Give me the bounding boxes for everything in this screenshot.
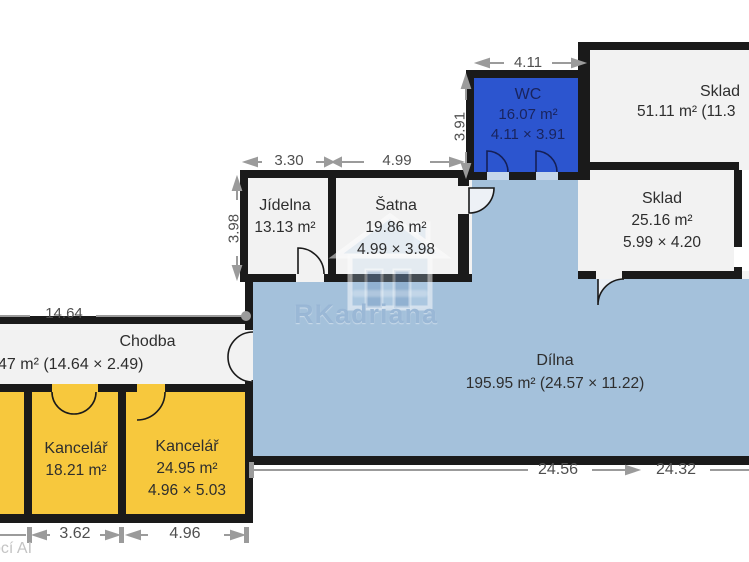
dimension-label-jidelna-width: 3.30 — [259, 152, 319, 169]
wc-door-opening-1 — [487, 172, 509, 180]
wall-sklad-divider — [578, 162, 749, 170]
ai-note-text: ocí AI — [0, 540, 32, 558]
room-label-satna: Šatna 19.86 m² 4.99 × 3.98 — [334, 195, 458, 261]
jidelna-door-opening — [296, 274, 324, 282]
room-label-sklad: Sklad 25.16 m² 5.99 × 4.20 — [584, 188, 740, 254]
wall-office-bottom — [0, 514, 253, 523]
room-name: Sklad — [700, 83, 740, 100]
dimension-label-wc-height: 3.91 — [452, 107, 469, 147]
room-size: 4.96 × 5.03 — [126, 480, 248, 502]
room-size: 4.99 × 3.98 — [334, 239, 458, 261]
room-area: 19.86 m² — [334, 217, 458, 239]
room-area: 195.95 m² (24.57 × 11.22) — [405, 372, 705, 395]
kancelar1-door-opening — [52, 384, 98, 392]
wall-block-top — [240, 170, 472, 178]
dimension-label-dilna-width-a: 24.56 — [528, 461, 588, 479]
floor-plan: RKadriana WC 16.07 m² 4.11 × 3.91 Sklad … — [0, 0, 749, 562]
wall-block-bottom — [240, 274, 472, 282]
dimension-label-kancelar-2-width: 4.96 — [155, 525, 215, 543]
room-area: 13.13 m² — [241, 217, 329, 239]
dimension-label-dilna-width-b: 24.32 — [646, 461, 706, 479]
room-name: Dílna — [405, 349, 705, 372]
room-label-dilna: Dílna 195.95 m² (24.57 × 11.22) — [405, 349, 705, 395]
room-label-kancelar-1: Kancelář 18.21 m² — [28, 438, 124, 482]
room-area: 51.11 m² (11.3 — [637, 103, 736, 120]
room-label-chodba-name: Chodba — [105, 331, 190, 352]
room-label-sklad-top-name: Sklad — [700, 81, 740, 102]
room-size: 4.11 × 3.91 — [468, 125, 588, 145]
brand-watermark: RKadriana — [294, 299, 438, 330]
room-name: Šatna — [334, 195, 458, 217]
chodba-door-opening — [245, 330, 253, 380]
room-label-jidelna: Jídelna 13.13 m² — [241, 195, 329, 239]
room-size: 5.99 × 4.20 — [584, 232, 740, 254]
room-name: Kancelář — [126, 436, 248, 458]
room-label-chodba-area: 47 m² (14.64 × 2.49) — [0, 354, 143, 375]
wall-wc-bottom — [466, 172, 590, 180]
dimension-label-satna-width: 4.99 — [367, 152, 427, 169]
dimension-label-chodba-width: 14.64 — [34, 305, 94, 322]
wc-door-opening-2 — [536, 172, 558, 180]
room-area: 24.95 m² — [126, 458, 248, 480]
dimension-label-kancelar-1-width: 3.62 — [45, 525, 105, 543]
room-name: Jídelna — [241, 195, 329, 217]
sklad-divider-opening — [739, 162, 749, 170]
room-label-kancelar-2: Kancelář 24.95 m² 4.96 × 5.03 — [126, 436, 248, 502]
kancelar2-door-opening — [137, 384, 165, 392]
room-name: Chodba — [119, 333, 175, 350]
watermark-smudge — [352, 290, 428, 297]
room-label-wc: WC 16.07 m² 4.11 × 3.91 — [468, 85, 588, 145]
room-label-sklad-top-area: 51.11 m² (11.3 — [637, 101, 736, 122]
room-name: Sklad — [584, 188, 740, 210]
satna-door-opening — [458, 186, 469, 214]
room-name: Kancelář — [28, 438, 124, 460]
wall-sklad-top — [578, 42, 749, 50]
dimension-label-block-height: 3.98 — [226, 201, 243, 257]
room-area: 47 m² (14.64 × 2.49) — [0, 356, 143, 373]
sklad-door-opening — [596, 271, 622, 279]
room-area: 25.16 m² — [584, 210, 740, 232]
room-name: WC — [468, 85, 588, 105]
exterior-sliver — [742, 170, 749, 271]
room-area: 16.07 m² — [468, 105, 588, 125]
dimension-label-wc-width: 4.11 — [498, 54, 558, 71]
wall-wc-top — [466, 70, 590, 78]
room-dilna-notch-fill — [462, 176, 582, 282]
room-area: 18.21 m² — [28, 460, 124, 482]
wall-chodba-bottom — [0, 384, 253, 392]
